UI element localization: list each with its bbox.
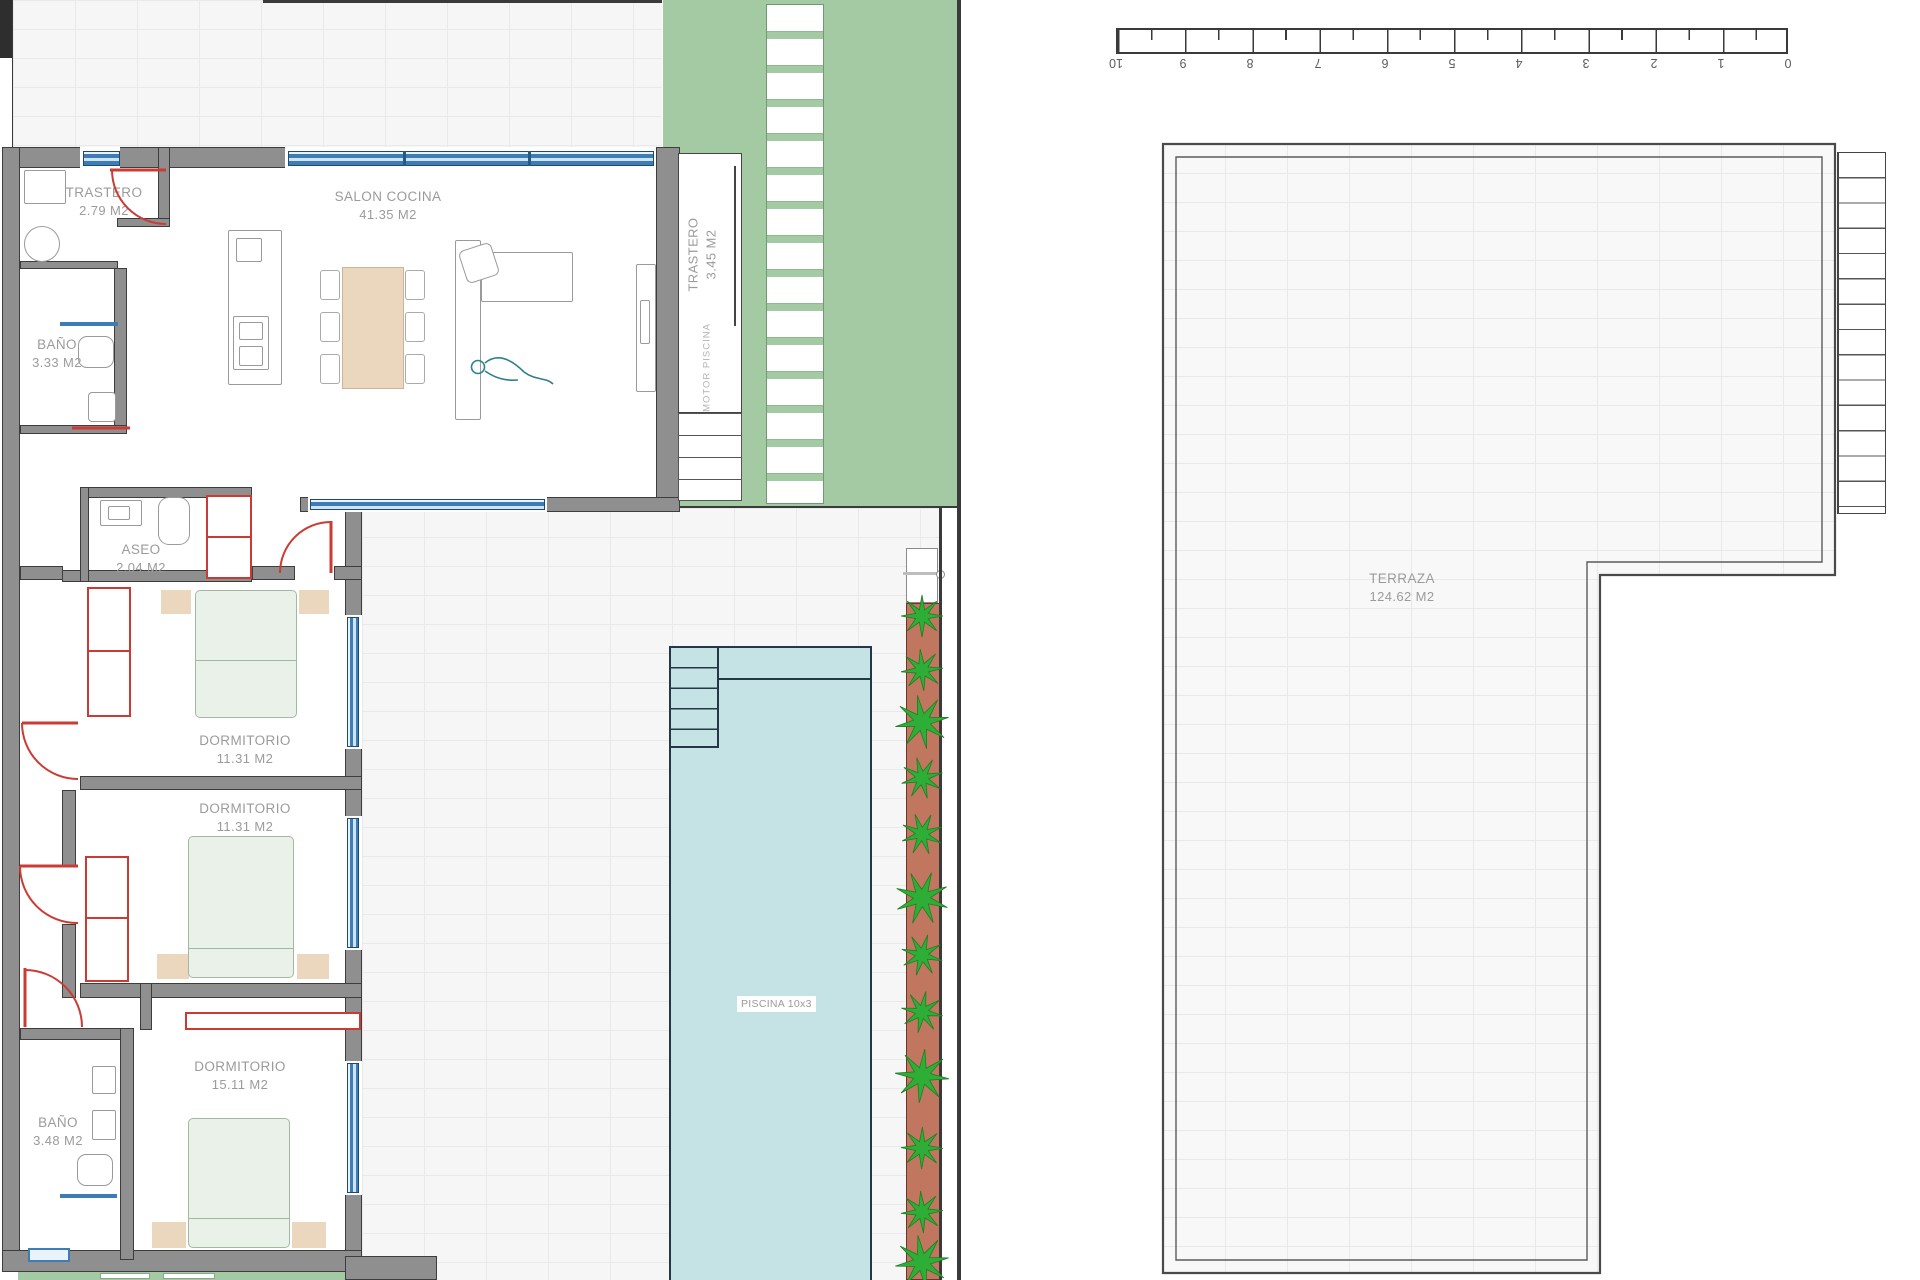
terraza-tiles <box>1163 144 1835 1273</box>
wall-dorm1-top-b <box>252 566 295 580</box>
pool-label: PISCINA 10x3 <box>737 996 816 1012</box>
window-dorm2 <box>347 818 359 948</box>
wall-corridor-dorm2-a <box>62 790 76 866</box>
ruler-number: 6 <box>1372 56 1398 70</box>
room-area: 3.48 M2 <box>8 1132 108 1149</box>
nightstand <box>299 590 329 614</box>
room-label-salon: SALON COCINA 41.35 M2 <box>308 188 468 223</box>
room-area: 2.79 M2 <box>34 202 174 219</box>
wall-bottom-step <box>345 1256 437 1280</box>
aseo-toilet <box>158 497 190 545</box>
room-name: DORMITORIO <box>165 732 325 750</box>
pool-label-text: PISCINA 10x3 <box>741 998 812 1010</box>
dining-chair <box>405 354 425 384</box>
room-label-motor-piscina: MOTOR PISCINA <box>702 313 713 423</box>
wall-trastero-stub <box>117 218 170 227</box>
nightstand <box>152 1222 186 1248</box>
nightstand <box>292 1222 326 1248</box>
nightstand <box>157 954 189 979</box>
bed-dorm2 <box>188 836 294 978</box>
cooktop-inner <box>239 346 263 366</box>
terraza-stairs <box>1837 152 1886 514</box>
tv-screen <box>640 300 650 344</box>
room-label-terraza: TERRAZA 124.62 M2 <box>1322 570 1482 605</box>
pool-steps <box>671 648 719 748</box>
exterior-small-stairs <box>678 413 742 501</box>
room-name: ASEO <box>81 541 201 559</box>
room-label-dorm1: DORMITORIO 11.31 M2 <box>165 732 325 767</box>
window-mullion <box>403 151 406 166</box>
wardrobe-dorm2-shelf <box>87 917 127 919</box>
ruler-number: 7 <box>1305 56 1331 70</box>
nightstand <box>297 954 329 979</box>
outdoor-shower-box <box>906 548 938 603</box>
bath2-window <box>28 1248 70 1262</box>
aseo-washbasin-bowl <box>108 506 130 520</box>
garden-stairs <box>766 4 824 504</box>
bath2-shower-line <box>60 1194 117 1198</box>
wardrobe-dorm3 <box>185 1012 361 1030</box>
wall-dorm1-dorm2 <box>80 776 362 790</box>
stepping-stone <box>163 1273 215 1279</box>
bath2-cabinet <box>92 1066 116 1094</box>
room-label-dorm2: DORMITORIO 11.31 M2 <box>165 800 325 835</box>
window-mullion <box>528 151 531 166</box>
window-salon-bottom <box>310 499 545 510</box>
scale-ruler-numbers: 109876543210 <box>1116 56 1788 76</box>
bed-sheet-line <box>196 660 296 661</box>
trastero-ext-door-line <box>734 166 736 326</box>
wardrobe-dorm2 <box>85 856 129 982</box>
water-heater-circle <box>24 226 60 262</box>
planter-strip <box>906 603 940 1280</box>
dining-chair <box>405 312 425 342</box>
bed-sheet-line <box>189 948 293 949</box>
room-area: 11.31 M2 <box>165 750 325 767</box>
wall-dorm3-jog <box>140 983 152 1030</box>
ruler-number: 5 <box>1439 56 1465 70</box>
bed-sheet-line <box>189 1218 289 1219</box>
person-figure <box>472 358 554 384</box>
planter-right-line <box>939 508 942 1280</box>
bath2-toilet <box>77 1154 113 1186</box>
plot-right-boundary <box>957 0 961 1280</box>
room-name: SALON COCINA <box>308 188 468 206</box>
washbasin <box>88 392 116 422</box>
ruler-number: 4 <box>1506 56 1532 70</box>
patio-top-tiles <box>12 0 662 147</box>
wall-dorm2-dorm3 <box>80 983 362 998</box>
room-label-dorm3: DORMITORIO 15.11 M2 <box>160 1058 320 1093</box>
wardrobe-dorm1 <box>87 587 131 717</box>
room-label-aseo: ASEO 2.04 M2 <box>81 541 201 576</box>
ruler-number: 1 <box>1708 56 1734 70</box>
dining-chair <box>320 312 340 342</box>
room-name: DORMITORIO <box>165 800 325 818</box>
room-area: 3.45 M2 <box>702 195 720 315</box>
ruler-number: 2 <box>1641 56 1667 70</box>
room-name: DORMITORIO <box>160 1058 320 1076</box>
room-area: 3.33 M2 <box>7 354 107 371</box>
wall-salon-right <box>656 147 680 512</box>
room-area: 2.04 M2 <box>81 559 201 576</box>
room-area: 124.62 M2 <box>1322 588 1482 605</box>
wall-bano2-top <box>20 1028 134 1040</box>
plot-corner-post <box>0 0 12 58</box>
wall-bano2-right <box>120 1028 134 1260</box>
window-dorm1 <box>347 617 359 747</box>
ruler-number: 9 <box>1170 56 1196 70</box>
wardrobe-dorm1-shelf <box>89 650 129 652</box>
room-name: TERRAZA <box>1322 570 1482 588</box>
dining-table <box>342 267 404 389</box>
ruler-number: 8 <box>1237 56 1263 70</box>
bed-dorm3 <box>188 1118 290 1248</box>
room-area: 41.35 M2 <box>308 206 468 223</box>
room-label-trastero-top: TRASTERO 2.79 M2 <box>34 184 174 219</box>
window-dorm3 <box>347 1063 359 1193</box>
room-label-bano-top: BAÑO 3.33 M2 <box>7 336 107 371</box>
wall-dorm1-top-c <box>334 566 362 580</box>
room-name: MOTOR PISCINA <box>702 323 713 412</box>
ruler-number: 0 <box>1775 56 1801 70</box>
plot-top-edge <box>263 0 662 3</box>
room-name: TRASTERO <box>34 184 174 202</box>
floor-plan-canvas: PISCINA 10x3 <box>0 0 1920 1280</box>
dining-chair <box>320 354 340 384</box>
room-label-bano-bottom: BAÑO 3.48 M2 <box>8 1114 108 1149</box>
wall-trastero-bottom <box>20 261 118 269</box>
ruler-number: 10 <box>1103 56 1129 70</box>
wall-bano1-bottom <box>20 425 127 434</box>
kitchen-sink <box>236 238 262 262</box>
dining-chair <box>320 270 340 300</box>
room-area: 11.31 M2 <box>165 818 325 835</box>
window-salon-top <box>288 151 654 166</box>
room-area: 15.11 M2 <box>160 1076 320 1093</box>
nightstand <box>161 590 191 614</box>
wall-dorm1-top-a <box>20 566 63 580</box>
room-label-trastero-ext: TRASTERO 3.45 M2 <box>684 195 719 315</box>
room-name: BAÑO <box>7 336 107 354</box>
room-name: BAÑO <box>8 1114 108 1132</box>
dining-chair <box>405 270 425 300</box>
cooktop-inner <box>239 322 263 340</box>
wardrobe-hall-shelf <box>208 536 250 538</box>
room-name: TRASTERO <box>684 195 702 315</box>
bed-dorm1 <box>195 590 297 718</box>
window-small-top <box>83 151 120 166</box>
stepping-stone <box>100 1273 150 1279</box>
wall-corridor-dorm2-b <box>62 924 76 998</box>
wall-left <box>2 147 20 1272</box>
shower-screen-line <box>60 322 118 326</box>
scale-ruler <box>1116 28 1788 54</box>
pool-bench-line <box>719 678 870 680</box>
ruler-number: 3 <box>1573 56 1599 70</box>
